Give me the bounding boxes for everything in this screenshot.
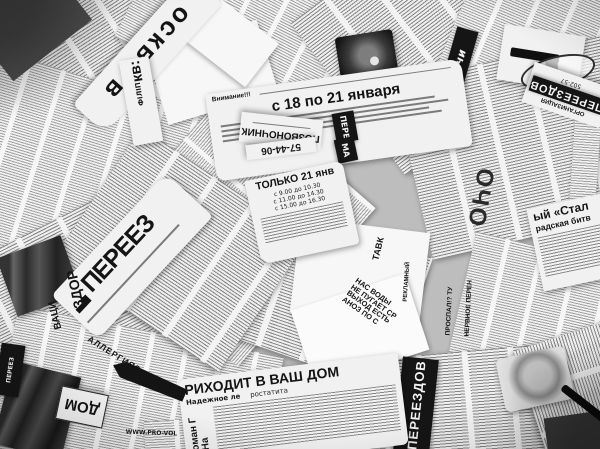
prospal-text: ПРОСПАЛ!? ТУ — [446, 245, 457, 335]
ma-text: МА — [340, 142, 352, 158]
pereezdov-vertical-text: ПЕРЕЕЗДОВ — [405, 360, 427, 449]
nervnoe-text: НЕРВНОЕ ПЕРЕН — [465, 246, 476, 336]
ocho-text: ОЧО — [463, 166, 497, 229]
vertical-headlines-scrap: ПРОСПАЛ!? ТУ НЕРВНОЕ ПЕРЕН — [442, 245, 481, 337]
newspaper-collage: осква в кв: ФІЛІП речи Внимание!!! с 18 … — [0, 0, 600, 449]
tavka-text: ТАВК — [371, 237, 385, 262]
pere-text: ПЕРЕ — [339, 115, 352, 140]
fine-print — [260, 201, 348, 244]
phone-number: 57-44-06 — [261, 141, 302, 156]
dom-text: ДОМ — [63, 396, 100, 418]
zdor-text: ЗДОР — [64, 268, 86, 309]
reklamny-text: РЕКЛАМНЫЙ — [403, 262, 412, 302]
url-line: WWW.PRO-VOL — [126, 419, 202, 431]
kv-text: кв: — [126, 59, 145, 83]
pereez-chip-text: ПЕРЕЕЗ — [5, 357, 16, 384]
filip-text: ФІЛІП — [134, 81, 146, 106]
vaci-text: ВАЦИ — [48, 300, 65, 330]
